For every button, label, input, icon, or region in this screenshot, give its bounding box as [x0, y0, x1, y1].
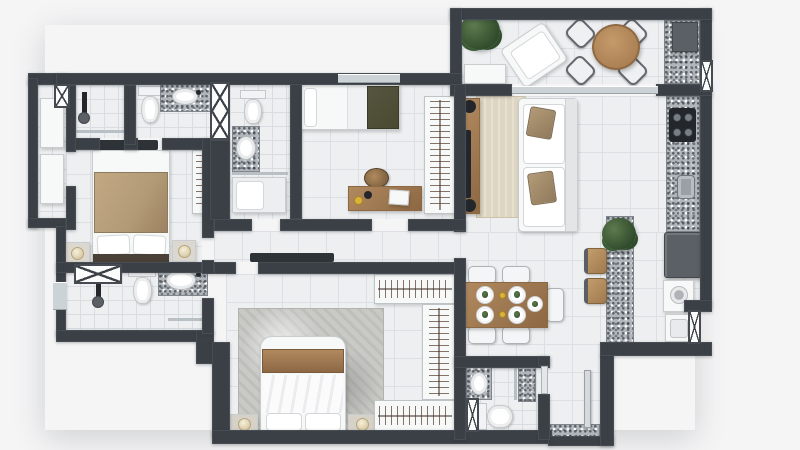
wall — [212, 342, 230, 438]
kitchen-sink — [677, 175, 695, 199]
floor-plan — [0, 0, 800, 450]
throw-pillow — [526, 106, 557, 140]
dining-chair — [468, 326, 496, 344]
shower-head — [78, 112, 90, 124]
balcony-window — [700, 60, 713, 92]
serving-bowl — [499, 311, 506, 318]
wall — [280, 219, 372, 231]
toilet-tank — [478, 403, 487, 430]
toilet — [141, 96, 159, 123]
closet-wardrobe-middle — [422, 304, 456, 400]
wall — [66, 186, 76, 230]
barbecue-grill — [672, 22, 698, 52]
closet-wardrobe-top — [374, 274, 456, 304]
wall — [214, 262, 236, 274]
place-setting — [527, 296, 543, 312]
master-bed — [260, 336, 346, 434]
table-lamp — [178, 245, 191, 258]
wall — [124, 85, 136, 145]
wall — [408, 219, 466, 231]
shower-bench — [232, 177, 286, 213]
bed-pillow — [305, 413, 341, 431]
bed-wood-band — [262, 349, 344, 373]
vent-shaft-window — [210, 82, 230, 140]
wall — [454, 258, 466, 440]
desk-accessory — [354, 196, 363, 205]
balcony-sliding-door — [512, 86, 658, 94]
wall — [210, 140, 230, 220]
place-setting — [508, 306, 526, 324]
cooktop — [669, 108, 696, 142]
wall — [202, 260, 214, 274]
service-window — [688, 310, 701, 344]
closet-cabinet — [40, 154, 64, 204]
shower-head — [92, 296, 104, 308]
toilet-tank — [240, 90, 266, 99]
dining-chair — [546, 288, 564, 322]
wall — [56, 73, 462, 85]
wall — [214, 219, 252, 231]
closet-wardrobe-bottom — [374, 400, 456, 431]
throw-pillow — [527, 170, 557, 205]
wall — [56, 226, 66, 336]
wall — [538, 356, 550, 366]
place-setting — [476, 286, 494, 304]
wall — [450, 8, 712, 20]
wall — [700, 90, 712, 308]
laundry-basin — [670, 319, 688, 338]
refrigerator — [664, 232, 702, 278]
balcony-round-table — [592, 24, 640, 70]
desk-chair — [364, 168, 389, 188]
bed-pillow — [96, 234, 130, 256]
shower-glass — [232, 172, 288, 175]
balcony-bench — [464, 64, 506, 84]
bathroom-window — [53, 282, 67, 310]
wall — [202, 298, 214, 334]
vent-shaft-window — [74, 264, 122, 284]
wall — [600, 354, 614, 446]
master-sliding-door — [250, 253, 334, 262]
wall — [454, 84, 466, 232]
wall — [28, 78, 38, 228]
bedroom2-wardrobe — [424, 96, 456, 214]
wall — [454, 356, 550, 368]
bar-stool — [584, 248, 607, 274]
bed-pillow — [304, 88, 317, 127]
bed-pillow — [132, 234, 166, 256]
bed-blanket-tan — [94, 172, 168, 233]
wall — [258, 262, 466, 274]
bed-blanket-olive — [367, 86, 399, 129]
island-plant — [602, 218, 636, 250]
bed-pillow — [266, 413, 302, 431]
place-setting — [476, 306, 494, 324]
bedroom1-bed — [92, 150, 170, 264]
sofa-back — [565, 99, 577, 231]
toilet-tank — [138, 86, 162, 96]
wall — [212, 430, 552, 444]
toilet — [487, 405, 513, 428]
vanity-sink — [236, 136, 256, 160]
wall — [56, 330, 206, 342]
nightstand — [64, 242, 90, 264]
wall — [538, 394, 550, 440]
table-lamp — [71, 247, 84, 260]
bar-stool — [584, 278, 607, 304]
faucet — [196, 90, 201, 95]
bathroom4-vent-window — [466, 398, 479, 432]
vanity-sink — [470, 372, 488, 395]
vanity-sink — [172, 88, 198, 105]
entry-door — [584, 370, 591, 428]
dining-chair — [502, 326, 530, 344]
toilet — [133, 277, 152, 304]
bench-pad — [236, 181, 264, 210]
desk-accessory — [364, 191, 372, 199]
wall — [600, 342, 712, 356]
bedroom2-window — [338, 74, 400, 83]
wall — [290, 84, 302, 219]
bed-duvet — [263, 375, 343, 413]
serving-bowl — [499, 292, 506, 299]
shower-glass — [76, 130, 124, 133]
bedroom2-bed — [300, 84, 400, 130]
bed-sheet — [347, 86, 367, 129]
bathroom4-door — [541, 366, 548, 394]
nightstand — [172, 240, 196, 262]
toilet — [244, 99, 262, 124]
place-setting — [508, 286, 526, 304]
vanity-sink — [166, 270, 196, 290]
laptop — [389, 189, 410, 205]
vent-window — [54, 84, 70, 108]
